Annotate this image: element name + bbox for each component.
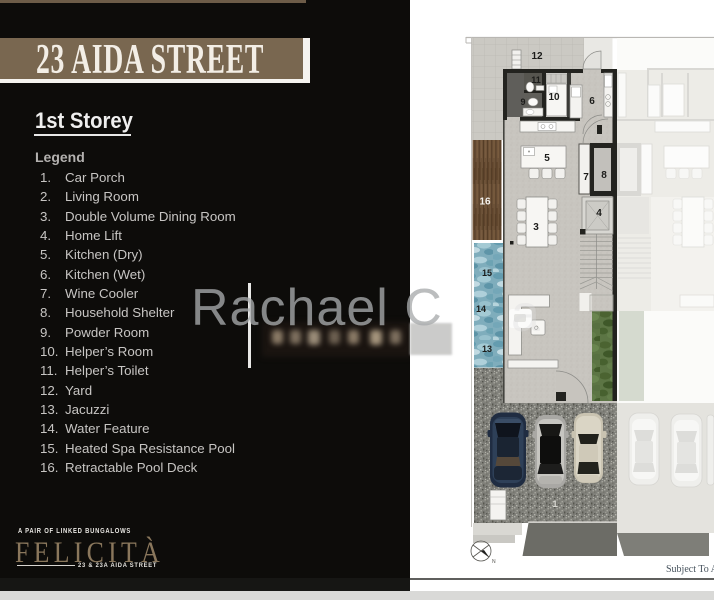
svg-text:16: 16 [479,197,491,208]
svg-text:a: a [511,285,540,343]
svg-text:Subject To Aut: Subject To Aut [666,564,714,575]
svg-text:11: 11 [531,75,541,85]
svg-text:4: 4 [596,208,602,219]
svg-text:3: 3 [533,222,539,233]
svg-text:13: 13 [482,344,492,354]
svg-text:1: 1 [552,499,557,509]
svg-text:8: 8 [601,170,607,181]
svg-text:15: 15 [482,268,492,278]
svg-text:6: 6 [589,96,595,107]
svg-text:5: 5 [544,153,550,164]
svg-text:14: 14 [476,304,486,314]
svg-text:N: N [492,559,496,565]
svg-text:7: 7 [583,172,589,183]
svg-text:10: 10 [548,92,560,103]
svg-text:9: 9 [520,97,525,107]
svg-text:12: 12 [531,51,543,62]
